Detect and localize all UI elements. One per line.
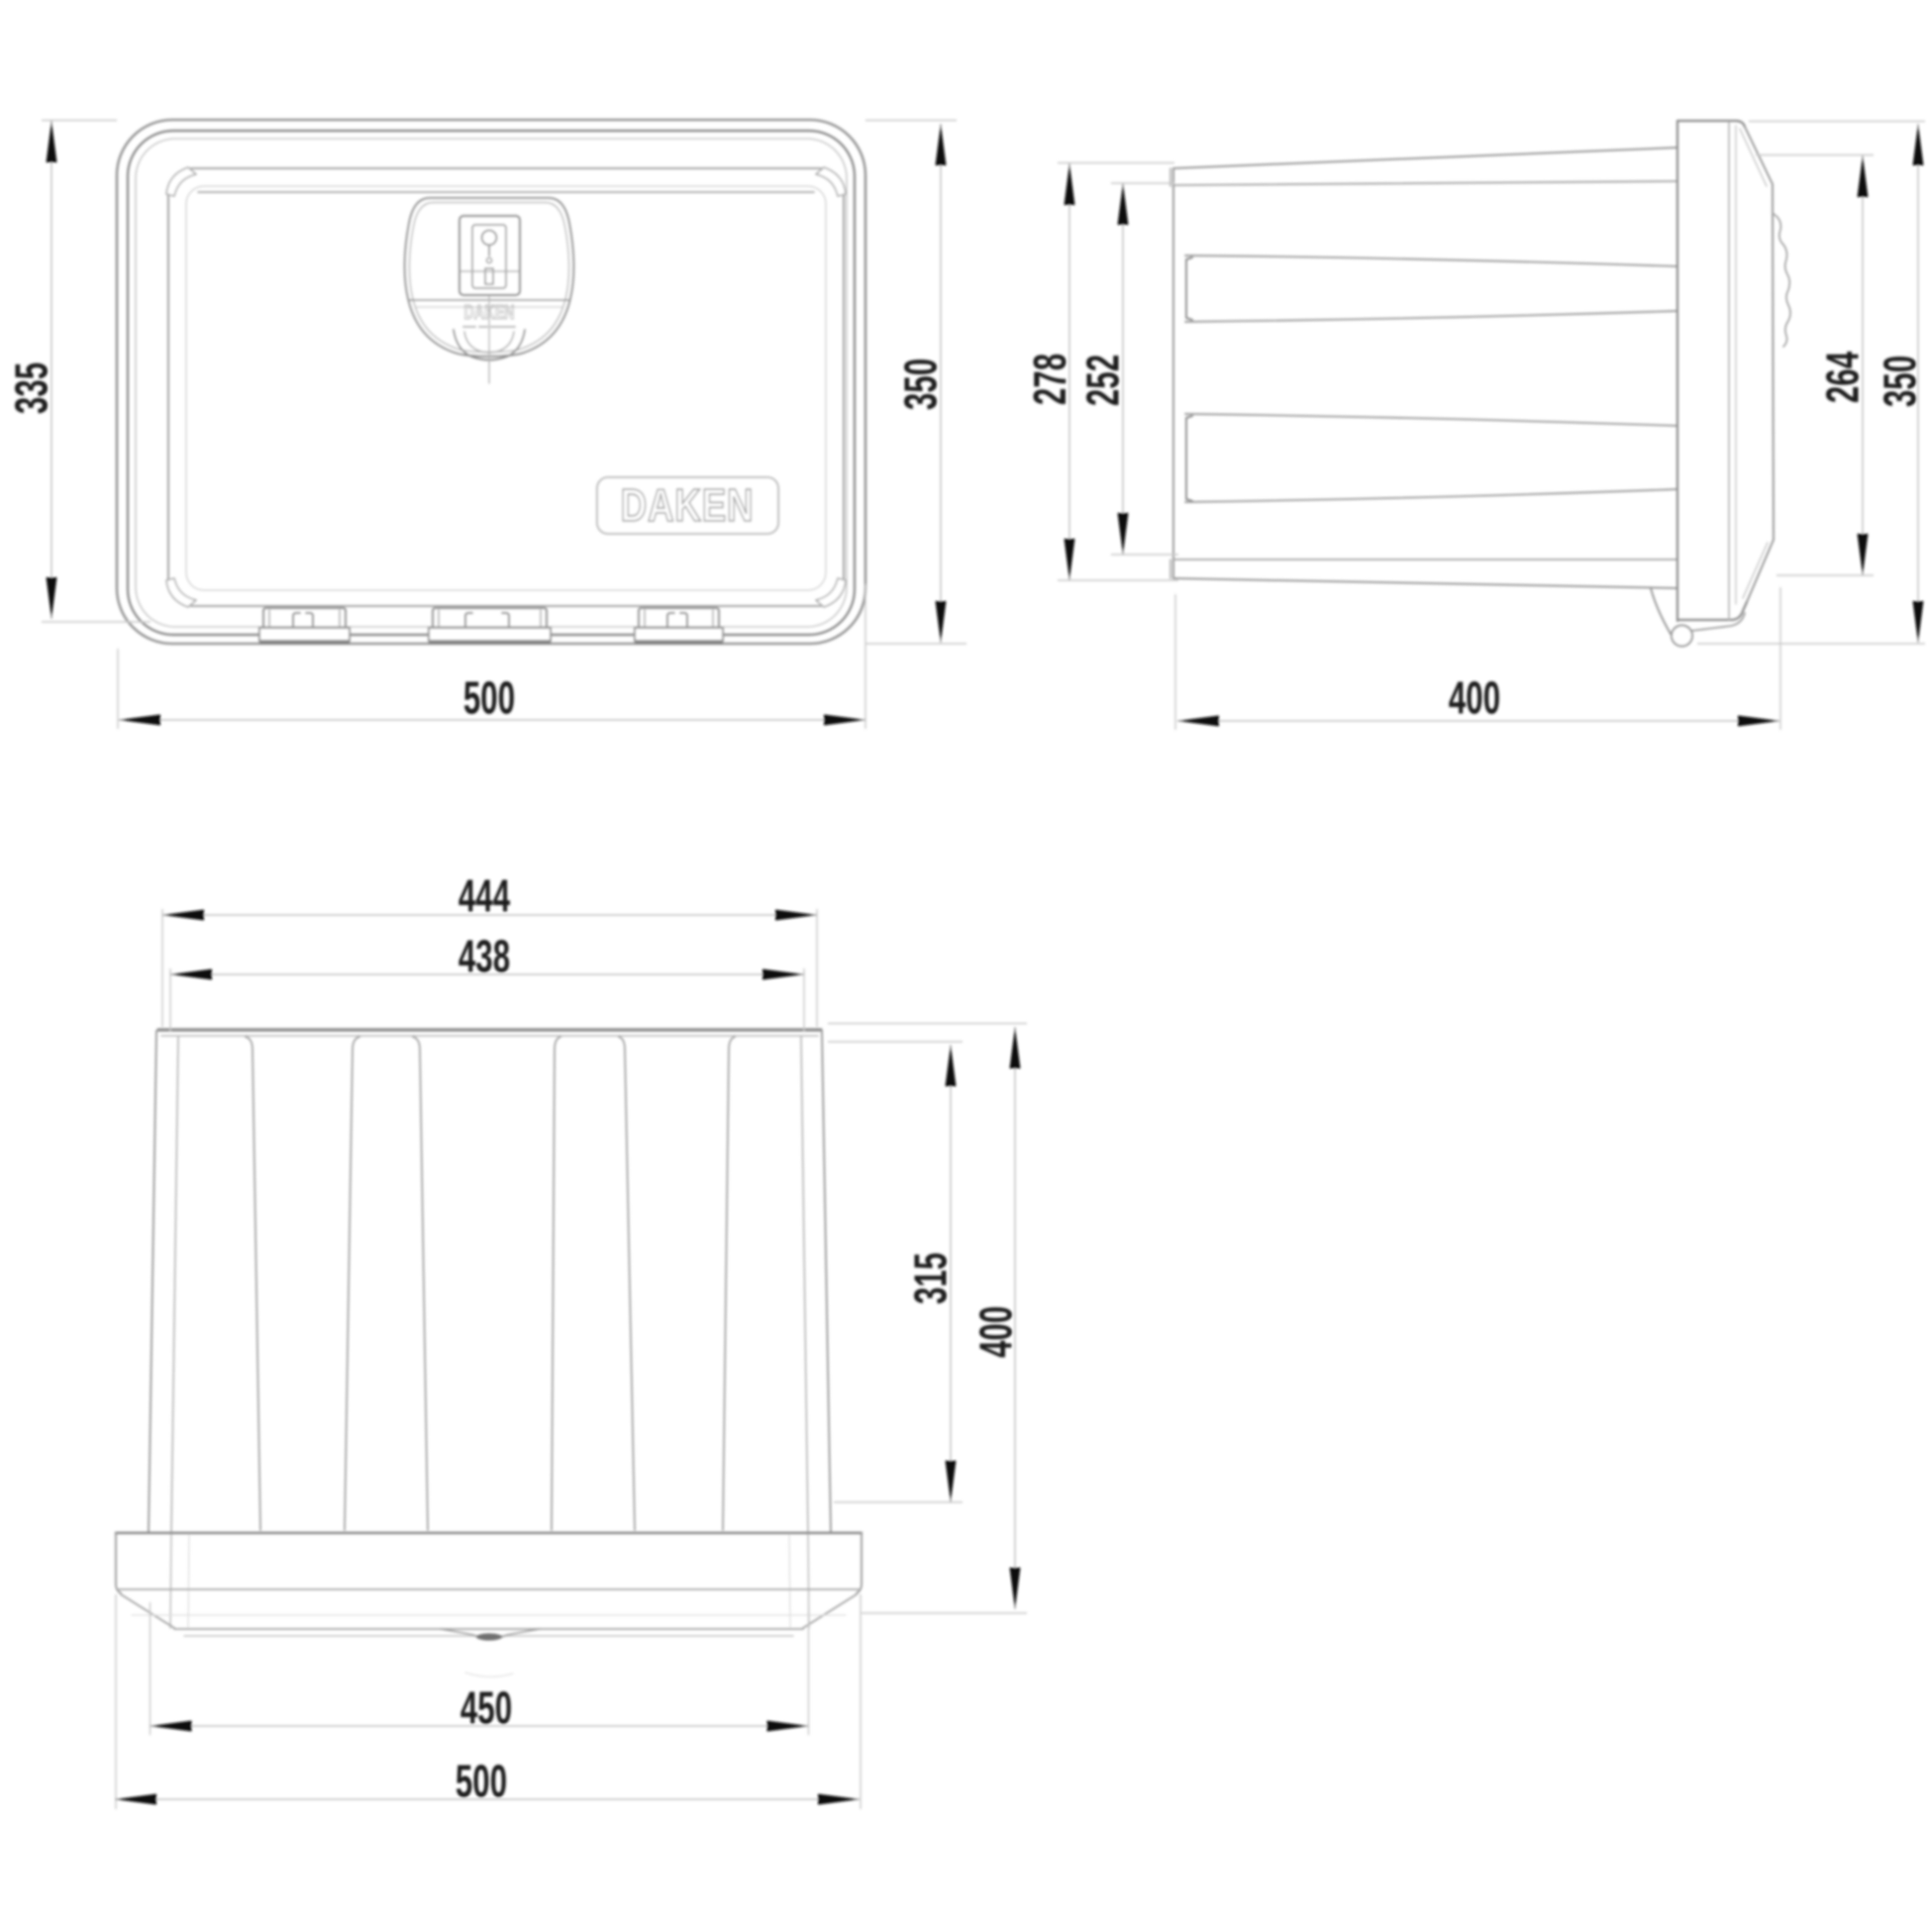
svg-text:278: 278: [1025, 354, 1075, 405]
svg-text:350: 350: [896, 358, 947, 410]
svg-text:350: 350: [1876, 356, 1926, 407]
svg-text:500: 500: [463, 673, 515, 724]
svg-text:400: 400: [971, 1306, 1022, 1358]
svg-text:252: 252: [1078, 355, 1129, 406]
svg-text:500: 500: [456, 1757, 507, 1807]
svg-text:450: 450: [460, 1683, 512, 1734]
svg-text:400: 400: [1449, 673, 1500, 724]
svg-text:264: 264: [1818, 352, 1869, 403]
svg-text:315: 315: [906, 1253, 957, 1304]
svg-text:335: 335: [7, 362, 57, 414]
svg-text:DAKEN: DAKEN: [621, 479, 755, 531]
svg-text:438: 438: [458, 932, 510, 982]
svg-text:444: 444: [458, 871, 510, 922]
